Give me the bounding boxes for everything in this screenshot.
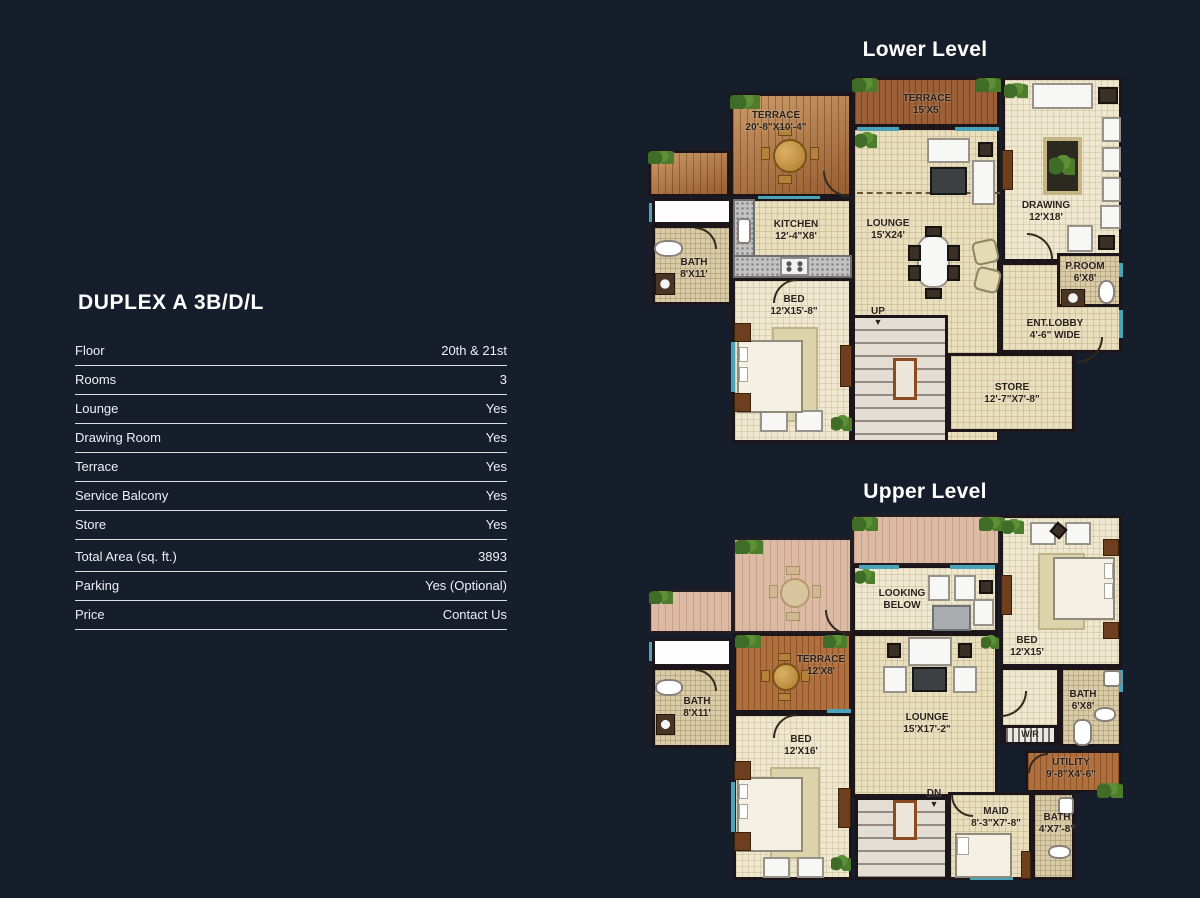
nightstand [1103, 539, 1119, 556]
label-lower-ent-lobby: ENT.LOBBY4'-6" WIDE [1027, 318, 1084, 342]
toilet [654, 240, 683, 257]
armchair [953, 666, 977, 693]
spec-row-parking: ParkingYes (Optional) [75, 572, 507, 601]
terrace-chair [810, 147, 819, 160]
label-upper-bath-8x11: BATH8'X11' [683, 696, 711, 720]
plant-icon [852, 517, 878, 531]
wardrobe [840, 345, 852, 387]
spec-row-lounge: LoungeYes [75, 395, 507, 424]
armchair [883, 666, 907, 693]
pillow [739, 347, 748, 362]
label-upper-lounge: LOUNGE15'X17'-2" [903, 712, 950, 736]
spec-label: Service Balcony [75, 488, 168, 503]
plant-icon [823, 635, 847, 648]
terrace-chair-ghost [786, 612, 800, 621]
dining-table [917, 235, 950, 288]
label-upper-bed-12x16: BED12'X16' [784, 734, 818, 758]
spec-label: Lounge [75, 401, 118, 416]
kitchen-sink [737, 218, 751, 244]
spec-value: Yes [486, 517, 507, 532]
side-table [1098, 87, 1118, 104]
label-lower-lounge: LOUNGE15'X24' [867, 218, 910, 242]
spec-value: Yes [486, 488, 507, 503]
armchair [1067, 225, 1093, 252]
window-strip [731, 342, 735, 392]
plant-icon [735, 635, 761, 648]
terrace-chair [761, 147, 770, 160]
spec-row-floor: Floor20th & 21st [75, 337, 507, 366]
stairs-up-arrow-icon: ▼ [871, 318, 885, 327]
bedroom-chair [763, 857, 790, 878]
terrace-table [773, 139, 807, 173]
spec-row-price: PriceContact Us [75, 601, 507, 630]
vanity-sink [655, 273, 675, 295]
label-lower-p-room: P.ROOM6'X8' [1065, 261, 1104, 285]
terrace-chair [778, 653, 791, 661]
window-strip [649, 642, 652, 661]
spec-value: Yes (Optional) [425, 578, 507, 593]
window-strip [731, 782, 735, 832]
terrace-chair [778, 175, 792, 184]
label-lower-terrace-top: TERRACE15'X5' [903, 93, 951, 117]
spec-row-total-area: Total Area (sq. ft.)3893 [75, 543, 507, 572]
window-strip [758, 196, 820, 199]
side-table [979, 580, 993, 594]
bedroom-chair [797, 857, 824, 878]
page: { "colors": { "background": "#161d2b", "… [0, 0, 1200, 898]
label-lower-drawing: DRAWING12'X18' [1022, 200, 1070, 224]
nightstand [734, 761, 751, 780]
sofa-seat [1102, 147, 1121, 172]
spec-value: 3 [500, 372, 507, 387]
sofa [927, 138, 970, 163]
nightstand [1103, 622, 1119, 639]
toilet [655, 679, 683, 696]
terrace-table [772, 663, 800, 691]
plant-icon [1002, 519, 1024, 534]
palm-plant-icon [855, 132, 877, 148]
label-stairs-up: UP▼ [871, 306, 885, 327]
spec-label: Total Area (sq. ft.) [75, 549, 177, 564]
pillow [1104, 563, 1113, 579]
plant-icon [1049, 155, 1075, 175]
window-strip [950, 565, 995, 569]
dining-chair [925, 226, 942, 237]
side-table [1098, 235, 1115, 250]
wardrobe [1001, 575, 1012, 615]
spec-value: Yes [486, 401, 507, 416]
terrace-chair [761, 670, 770, 682]
pillow [739, 804, 748, 819]
side-table [958, 643, 972, 658]
plant-icon [730, 95, 760, 109]
toilet [1094, 707, 1116, 722]
label-lower-store: STORE12'-7"X7'-8" [984, 382, 1039, 406]
window-strip [857, 127, 899, 131]
dining-chair [925, 288, 942, 299]
dining-chair [908, 245, 921, 261]
label-upper-wr: W/R [1021, 729, 1039, 739]
label-upper-terrace: TERRACE12'X8' [797, 654, 845, 678]
room-upper-service-balcony [652, 638, 732, 667]
spec-value: Contact Us [443, 607, 507, 622]
label-lower-kitchen: KITCHEN12'-4"X8' [774, 219, 818, 243]
label-lower-terrace-large: TERRACE20'-8"X10'-4" [746, 110, 807, 134]
pillow [1104, 583, 1113, 599]
spec-row-terrace: TerraceYes [75, 453, 507, 482]
side-table [887, 643, 901, 658]
bedroom-chair [1065, 522, 1091, 545]
armchair [972, 160, 995, 205]
stair-rail [893, 800, 917, 840]
window-strip [955, 127, 999, 131]
sofa-seat [1102, 177, 1121, 202]
spec-label: Store [75, 517, 106, 532]
room-lower-service-balcony [652, 198, 732, 225]
toilet [1048, 845, 1071, 859]
label-upper-looking-below: LOOKING BELOW [866, 588, 938, 612]
terrace-chair [778, 693, 791, 701]
dining-chair [908, 265, 921, 281]
nightstand [734, 323, 751, 342]
dining-chair [947, 245, 960, 261]
label-stairs-down: DN▼ [927, 788, 941, 809]
plant-icon [648, 151, 674, 164]
page-title: DUPLEX A 3B/D/L [78, 291, 507, 315]
plant-icon [831, 415, 852, 431]
tv-unit [912, 667, 947, 692]
palm-plant-icon [855, 569, 875, 584]
plant-icon [1004, 83, 1028, 98]
plant-icon [852, 78, 878, 92]
plant-icon [649, 591, 673, 604]
stairs-down-arrow-icon: ▼ [927, 800, 941, 809]
sofa-seat [1100, 205, 1121, 229]
terrace-chair-ghost [769, 585, 778, 598]
bedroom-chair [795, 410, 823, 432]
palm-plant-icon [981, 635, 999, 649]
sofa [1032, 83, 1093, 109]
spec-value: Yes [486, 459, 507, 474]
wardrobe [838, 788, 851, 828]
vanity-sink [1061, 289, 1085, 307]
vanity-sink [656, 714, 675, 735]
plant-icon [831, 855, 851, 871]
spec-value: 20th & 21st [441, 343, 507, 358]
nightstand [734, 832, 751, 851]
pillow [739, 784, 748, 799]
nightstand [734, 393, 751, 412]
stair-rail [893, 358, 917, 400]
window-strip [649, 203, 652, 222]
lower-level-title: Lower Level [745, 38, 1105, 62]
bathroom-sink [1103, 670, 1121, 687]
spec-label: Drawing Room [75, 430, 161, 445]
plant-icon [735, 540, 763, 554]
spec-label: Terrace [75, 459, 118, 474]
wardrobe [1002, 150, 1013, 190]
window-strip [1119, 310, 1123, 338]
dining-chair [947, 265, 960, 281]
sofa-seat [1102, 117, 1121, 142]
spec-row-rooms: Rooms3 [75, 366, 507, 395]
wardrobe [1021, 851, 1031, 879]
floorplan-lower-level: TERRACE20'-8"X10'-4" TERRACE15'X5' DRAWI… [645, 75, 1125, 445]
spec-panel: DUPLEX A 3B/D/L Floor20th & 21st Rooms3 … [75, 291, 507, 630]
label-upper-bath-4x7: BATH4'X7'-8" [1039, 812, 1075, 836]
spec-label: Price [75, 607, 105, 622]
spec-label: Floor [75, 343, 105, 358]
label-upper-utility: UTILITY9'-8"X4'-6" [1046, 757, 1096, 781]
side-table [978, 142, 993, 157]
terrace-chair-ghost [786, 566, 800, 575]
label-upper-bed-12x15: BED12'X15' [1010, 635, 1044, 659]
pillow [957, 837, 969, 855]
tv-unit [930, 167, 967, 195]
spec-label: Parking [75, 578, 119, 593]
terrace-chair-ghost [812, 585, 821, 598]
plant-icon [975, 78, 1001, 92]
floorplan-upper-level: LOOKING BELOW BED12'X15' BATH6'X8' W/R U… [645, 515, 1125, 885]
spec-value: 3893 [478, 549, 507, 564]
stove [780, 257, 809, 276]
plant-icon [1097, 783, 1123, 798]
label-upper-maid: MAID8'-3"X7'-8" [971, 806, 1021, 830]
label-lower-bed: BED12'X15'-8" [770, 294, 817, 318]
spec-table: Floor20th & 21st Rooms3 LoungeYes Drawin… [75, 337, 507, 630]
bedroom-chair [760, 410, 788, 432]
upper-level-title: Upper Level [745, 480, 1105, 504]
bathtub [1073, 719, 1092, 746]
spec-row-service-balcony: Service BalconyYes [75, 482, 507, 511]
label-upper-bath-6x8: BATH6'X8' [1069, 689, 1096, 713]
spec-row-store: StoreYes [75, 511, 507, 540]
label-lower-bath: BATH8'X11' [680, 257, 708, 281]
spec-value: Yes [486, 430, 507, 445]
sofa-seat [954, 575, 976, 601]
terrace-table-ghost [780, 578, 810, 608]
armchair [973, 599, 994, 626]
sofa [908, 637, 952, 666]
spec-label: Rooms [75, 372, 116, 387]
window-strip [827, 709, 851, 713]
window-strip [1119, 263, 1123, 277]
pillow [739, 367, 748, 382]
spec-row-drawing-room: Drawing RoomYes [75, 424, 507, 453]
